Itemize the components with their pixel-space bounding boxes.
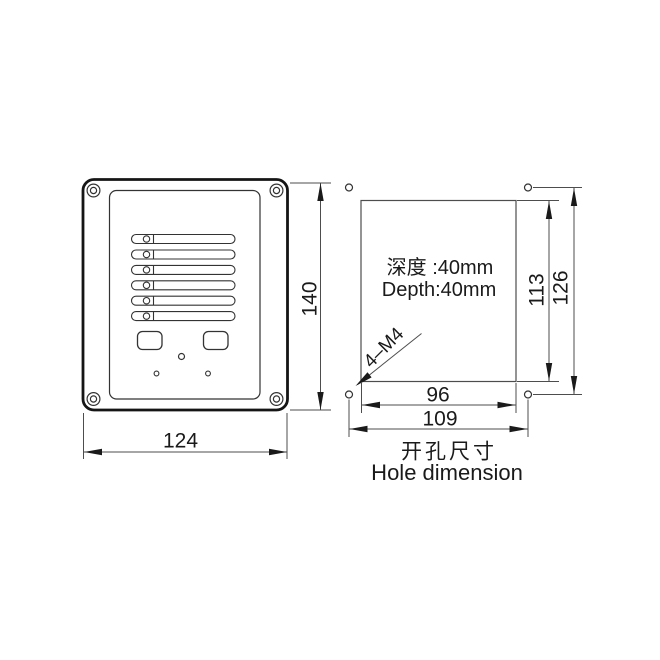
front-panel-view — [83, 180, 288, 411]
drawing-canvas: 124 140 深度 :40mm Depth:40mm 4–M4 96 109 … — [0, 0, 660, 660]
dimension-label-inner-height-113: 113 — [526, 273, 547, 306]
speaker-slot-6 — [132, 312, 236, 321]
panel-button-left — [138, 332, 163, 350]
panel-inner-faceplate — [110, 191, 261, 400]
depth-note-chinese: 深度 :40mm — [387, 258, 494, 278]
speaker-slot-1 — [132, 235, 236, 244]
dimension-label-width-124: 124 — [163, 431, 198, 452]
hole-view-dimensions — [349, 188, 582, 438]
panel-small-hole-left — [154, 371, 159, 376]
m4-hole-top-left — [346, 184, 353, 191]
dimension-label-outer-width-109: 109 — [422, 409, 457, 430]
panel-button-right — [204, 332, 229, 350]
dimension-label-inner-width-96: 96 — [426, 385, 449, 406]
dimension-label-outer-height-126: 126 — [551, 270, 572, 305]
mounting-screw-bottom-right — [270, 393, 283, 406]
hole-view-dimension-arrows — [350, 188, 578, 432]
m4-leader-arrow — [356, 372, 372, 386]
speaker-slot-3 — [132, 265, 236, 274]
mounting-screw-bottom-left — [87, 393, 100, 406]
m4-hole-bottom-right — [525, 391, 532, 398]
drawing-linework — [0, 0, 660, 660]
panel-outer-housing — [83, 180, 288, 411]
dimension-label-height-140: 140 — [299, 281, 320, 316]
depth-note-english: Depth:40mm — [382, 280, 497, 300]
hole-view-caption-english: Hole dimension — [371, 462, 523, 484]
panel-small-hole-right — [206, 371, 211, 376]
mounting-screw-top-left — [87, 184, 100, 197]
speaker-slot-5 — [132, 296, 236, 305]
mounting-screw-top-right — [270, 184, 283, 197]
m4-hole-top-right — [525, 184, 532, 191]
speaker-slot-2 — [132, 250, 236, 259]
panel-center-hole — [179, 354, 185, 360]
m4-hole-bottom-left — [346, 391, 353, 398]
speaker-slot-4 — [132, 281, 236, 290]
